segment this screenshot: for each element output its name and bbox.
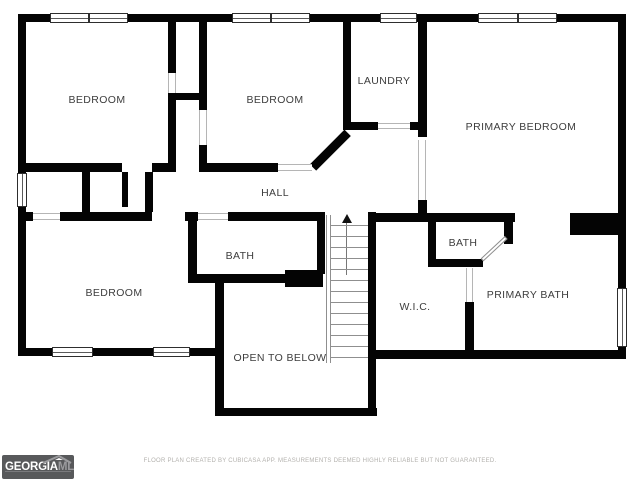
door-opening: [378, 123, 410, 129]
window-mullion: [517, 14, 519, 22]
door-opening: [198, 213, 228, 220]
wall: [168, 93, 176, 172]
wall: [410, 122, 427, 130]
georgia-mls-logo: GEORGIAMLS REAL ESTATE SERVICES: [2, 455, 74, 479]
wall: [18, 348, 224, 356]
stair-tread: [331, 346, 368, 347]
window-glass-line: [53, 352, 92, 353]
window: [52, 347, 93, 357]
wall: [368, 350, 626, 359]
stair-tread: [331, 236, 368, 237]
stair-rail: [326, 215, 331, 363]
stairs-arrow-shaft: [346, 223, 347, 275]
wall: [428, 259, 483, 267]
room-label-bedroom-top-left: BEDROOM: [68, 94, 125, 106]
stair-tread: [331, 225, 368, 226]
window-glass-line: [22, 174, 23, 206]
room-label-open-to-below: OPEN TO BELOW: [234, 352, 327, 364]
logo-tagline-row: REAL ESTATE SERVICES: [5, 471, 71, 479]
stairs-up-arrow-icon: [342, 214, 352, 223]
wall: [368, 212, 376, 416]
diagonal-wall: [310, 130, 351, 171]
roof-icon: [42, 455, 72, 464]
stair-tread: [331, 280, 368, 281]
window-glass-line: [381, 18, 416, 19]
stair-tread: [331, 258, 368, 259]
room-label-wic: W.I.C.: [400, 301, 431, 313]
wall: [228, 212, 325, 221]
wall: [215, 283, 224, 416]
wall: [570, 213, 618, 235]
door-opening: [466, 268, 473, 302]
stair-tread: [331, 324, 368, 325]
room-label-bath-right: BATH: [449, 237, 478, 249]
window: [478, 13, 557, 23]
floor-plan: BEDROOM BEDROOM LAUNDRY PRIMARY BEDROOM …: [0, 0, 640, 480]
door-leaf: [481, 236, 508, 261]
room-label-primary-bedroom: PRIMARY BEDROOM: [466, 121, 577, 133]
room-label-hall: HALL: [261, 187, 289, 199]
room-label-laundry: LAUNDRY: [358, 75, 411, 87]
stair-tread: [331, 302, 368, 303]
wall: [317, 212, 325, 274]
window-mullion: [88, 14, 90, 22]
door-opening: [418, 140, 426, 200]
wall: [18, 212, 33, 221]
door-opening: [33, 213, 60, 220]
window-glass-line: [622, 289, 623, 346]
window: [50, 13, 128, 23]
wall: [152, 163, 173, 172]
footer-disclaimer: FLOOR PLAN CREATED BY CUBICASA APP. MEAS…: [144, 458, 497, 464]
wall: [199, 163, 278, 172]
room-label-bedroom-top-middle: BEDROOM: [246, 94, 303, 106]
door-opening: [278, 164, 312, 171]
wall: [188, 274, 285, 283]
room-label-primary-bath: PRIMARY BATH: [487, 289, 569, 301]
room-label-bath-middle: BATH: [226, 250, 255, 262]
stair-tread: [331, 313, 368, 314]
stair-tread: [331, 247, 368, 248]
wall: [172, 93, 205, 100]
door-opening: [168, 73, 176, 93]
wall: [465, 302, 474, 352]
stair-tread: [331, 335, 368, 336]
wall: [60, 212, 152, 221]
wall: [418, 200, 427, 213]
stair-tread: [331, 269, 368, 270]
wall: [418, 14, 427, 137]
window: [153, 347, 190, 357]
window-mullion: [270, 14, 272, 22]
wall: [215, 408, 377, 416]
wall: [145, 172, 153, 212]
window-glass-line: [154, 352, 189, 353]
window: [617, 288, 627, 347]
window: [232, 13, 310, 23]
stair-tread: [331, 357, 368, 358]
wall: [122, 172, 128, 207]
wall: [82, 172, 90, 212]
room-label-bedroom-bottom-left: BEDROOM: [85, 287, 142, 299]
wall: [168, 22, 176, 73]
wall: [188, 212, 197, 283]
door-opening: [199, 110, 207, 145]
wall: [368, 213, 515, 222]
window: [17, 173, 27, 207]
wall: [343, 14, 351, 128]
window: [380, 13, 417, 23]
wall: [343, 122, 378, 130]
stair-tread: [331, 291, 368, 292]
wall: [26, 163, 122, 172]
